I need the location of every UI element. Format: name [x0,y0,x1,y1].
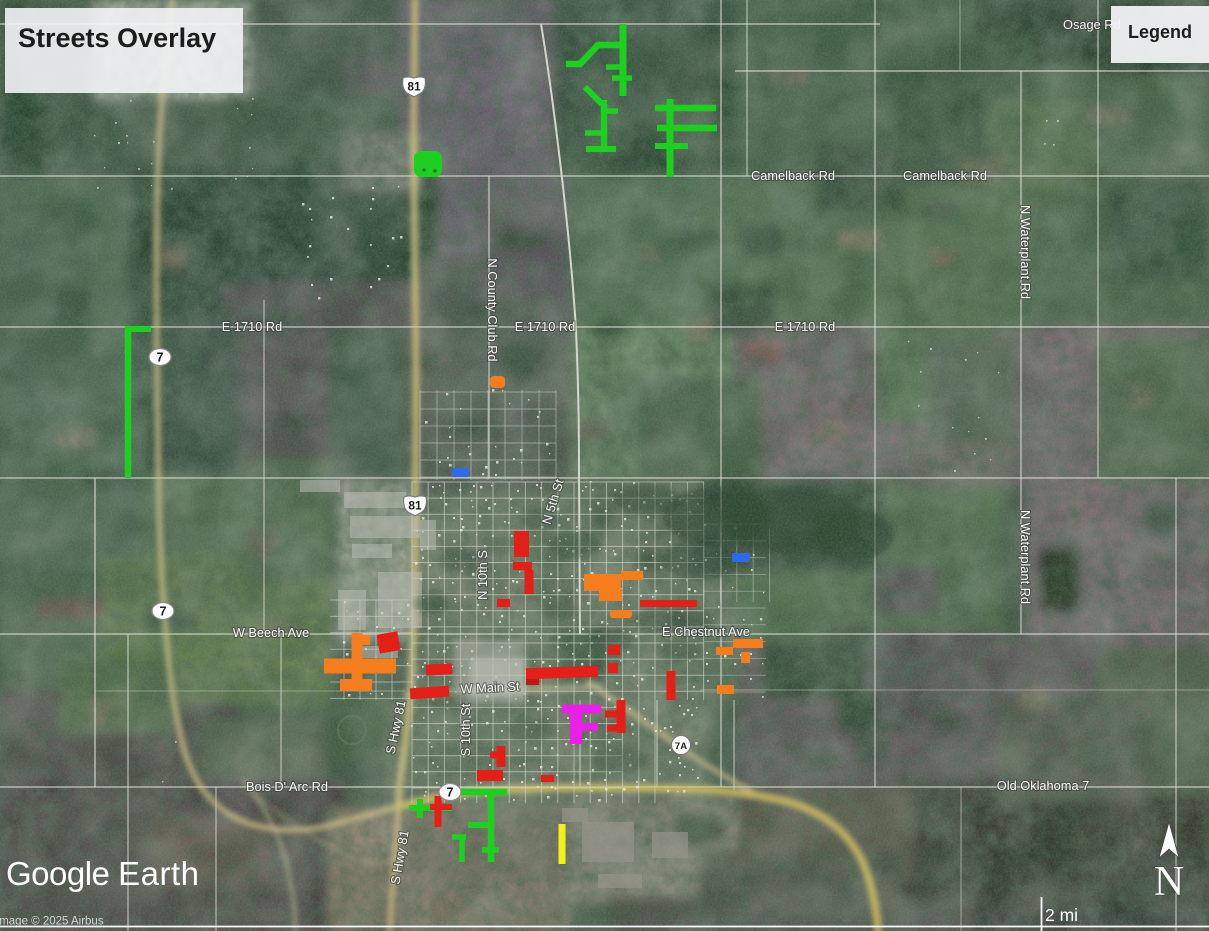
svg-text:7A: 7A [675,741,687,752]
svg-text:7: 7 [447,786,454,800]
svg-text:E 1710 Rd: E 1710 Rd [515,319,575,334]
svg-text:N: N [1154,859,1184,905]
svg-text:S 10th St: S 10th St [458,703,473,756]
svg-text:Bois D' Arc Rd: Bois D' Arc Rd [246,779,328,794]
svg-text:W Main St: W Main St [460,678,520,696]
svg-text:2 mi: 2 mi [1045,905,1078,925]
svg-text:E Chestnut Ave: E Chestnut Ave [662,624,750,639]
svg-text:N Waterplant Rd: N Waterplant Rd [1018,510,1033,604]
svg-text:81: 81 [408,499,422,513]
svg-text:Streets Overlay: Streets Overlay [18,23,216,53]
svg-text:N County Club Rd: N County Club Rd [485,258,500,361]
svg-text:E 1710 Rd: E 1710 Rd [775,319,835,334]
svg-text:N Waterplant Rd: N Waterplant Rd [1018,205,1033,299]
svg-text:Old Oklahoma 7: Old Oklahoma 7 [997,778,1089,793]
svg-text:7: 7 [157,351,164,365]
svg-text:W Beech Ave: W Beech Ave [233,625,310,640]
svg-text:7: 7 [160,605,167,619]
svg-text:N 10th S: N 10th S [475,550,490,600]
svg-text:E 1710 Rd: E 1710 Rd [222,319,282,334]
svg-text:Legend: Legend [1128,22,1192,42]
svg-text:Camelback Rd: Camelback Rd [903,168,987,183]
svg-text:Google Earth: Google Earth [6,855,199,892]
svg-text:81: 81 [407,80,421,94]
svg-text:Camelback Rd: Camelback Rd [751,168,835,183]
